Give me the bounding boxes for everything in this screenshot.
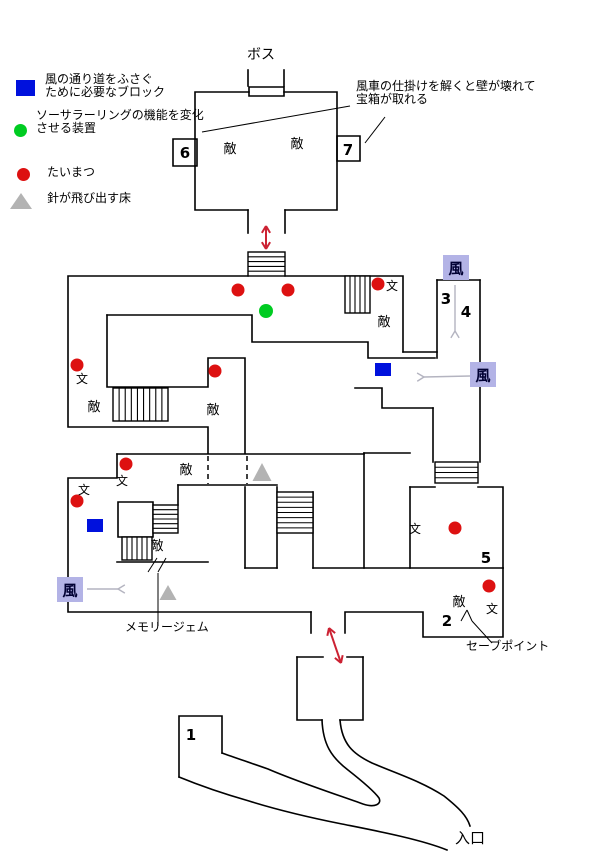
stairs — [248, 252, 285, 276]
room-number: 6 — [180, 144, 190, 162]
wind-direction-arrow — [118, 589, 125, 593]
room-number: 1 — [186, 726, 196, 744]
wind-box-label: 風 — [448, 260, 463, 278]
enemy-label: 敵 — [206, 402, 219, 418]
entrance-label: 入口 — [455, 832, 485, 845]
stairs — [345, 276, 370, 313]
wind-direction-arrow — [417, 377, 424, 381]
wind-box-label: 風 — [475, 367, 490, 385]
two-way-red-arrow — [341, 655, 343, 663]
torch-marker — [232, 284, 245, 297]
wind-box-label: 風 — [62, 582, 77, 600]
legend-item-ring-device: ソーサラーリングの機能を変化 させる装置 — [14, 109, 204, 137]
room-number: 2 — [442, 612, 452, 630]
torch-icon — [17, 168, 30, 181]
wind-direction-arrow — [417, 373, 424, 377]
enemy-label: 敵 — [87, 399, 100, 415]
spike-floor-marker — [160, 585, 177, 600]
enemy-label: 敵 — [377, 314, 390, 330]
monument-label: 文 — [116, 473, 128, 488]
wall — [249, 87, 284, 96]
save-point-label: セーブポイント — [466, 640, 549, 653]
pointer-line — [202, 106, 350, 132]
spike-floor-marker — [253, 463, 272, 481]
wall — [297, 657, 322, 720]
legend-item-torch: たいまつ — [17, 166, 95, 181]
monument-label: 文 — [486, 601, 498, 616]
legend-line: たいまつ — [47, 166, 95, 181]
enemy-label: 敵 — [452, 594, 465, 610]
torch-marker — [483, 580, 496, 593]
torch-marker — [120, 458, 133, 471]
monument-label: 文 — [76, 371, 88, 386]
torch-marker — [71, 359, 84, 372]
pointer-line — [461, 610, 467, 621]
legend-item-text: ソーサラーリングの機能を変化 させる装置 — [36, 109, 204, 137]
monument-label: 文 — [409, 521, 421, 536]
sorcerer-ring-device-icon — [14, 124, 27, 137]
pointer-line — [467, 610, 472, 621]
windmill-note: 風車の仕掛けを解くと壁が壊れて 宝箱が取れる — [356, 80, 536, 106]
legend-line: ために必要なブロック — [45, 86, 165, 99]
torch-marker — [282, 284, 295, 297]
two-way-red-arrow — [327, 628, 329, 636]
wind-direction-arrow — [118, 585, 125, 589]
monument-label: 文 — [78, 482, 90, 497]
enemy-label: 敵 — [223, 141, 236, 157]
windmill-note-line: 宝箱が取れる — [356, 93, 536, 106]
dungeon-map-canvas: 風風風敵敵敵敵敵敵敵敵文文文文文文1234567 風の通り道をふさぐ ために必要… — [0, 0, 602, 862]
wall — [355, 388, 433, 408]
enemy-label: 敵 — [179, 462, 192, 478]
wall — [222, 720, 380, 806]
legend-item-block: 風の通り道をふさぐ ために必要なブロック — [16, 73, 165, 99]
wall — [118, 502, 153, 537]
wall — [340, 657, 363, 720]
memory-gem-label: メモリージェム — [125, 621, 209, 634]
room-number: 5 — [481, 549, 491, 567]
ring-device-marker — [259, 304, 273, 318]
torch-marker — [209, 365, 222, 378]
block-icon — [16, 80, 35, 96]
room-number: 3 — [441, 290, 451, 308]
wind-direction-arrow — [451, 331, 455, 338]
pointer-line — [158, 558, 166, 572]
stairs — [113, 388, 168, 421]
wall — [179, 777, 447, 850]
spike-floor-icon — [10, 193, 32, 209]
wall — [345, 568, 503, 637]
wind-direction-arrow — [424, 376, 470, 377]
room-number: 4 — [461, 303, 471, 321]
enemy-label: 敵 — [290, 136, 303, 152]
wall — [107, 315, 245, 453]
monument-label: 文 — [386, 278, 398, 293]
boss-label: ボス — [247, 49, 275, 62]
enemy-label: 敵 — [150, 538, 163, 554]
legend-line: させる装置 — [36, 122, 204, 135]
legend-item-text: 風の通り道をふさぐ ために必要なブロック — [45, 73, 165, 99]
block-marker — [87, 519, 103, 532]
wall — [68, 276, 248, 453]
room-number: 7 — [343, 141, 353, 159]
legend-item-spike-floor: 針が飛び出す床 — [10, 192, 131, 209]
wind-direction-arrow — [455, 331, 459, 338]
legend-line: 針が飛び出す床 — [47, 192, 131, 209]
pointer-line — [365, 117, 385, 143]
torch-marker — [449, 522, 462, 535]
torch-marker — [372, 278, 385, 291]
block-marker — [375, 363, 391, 376]
wall — [340, 720, 470, 826]
